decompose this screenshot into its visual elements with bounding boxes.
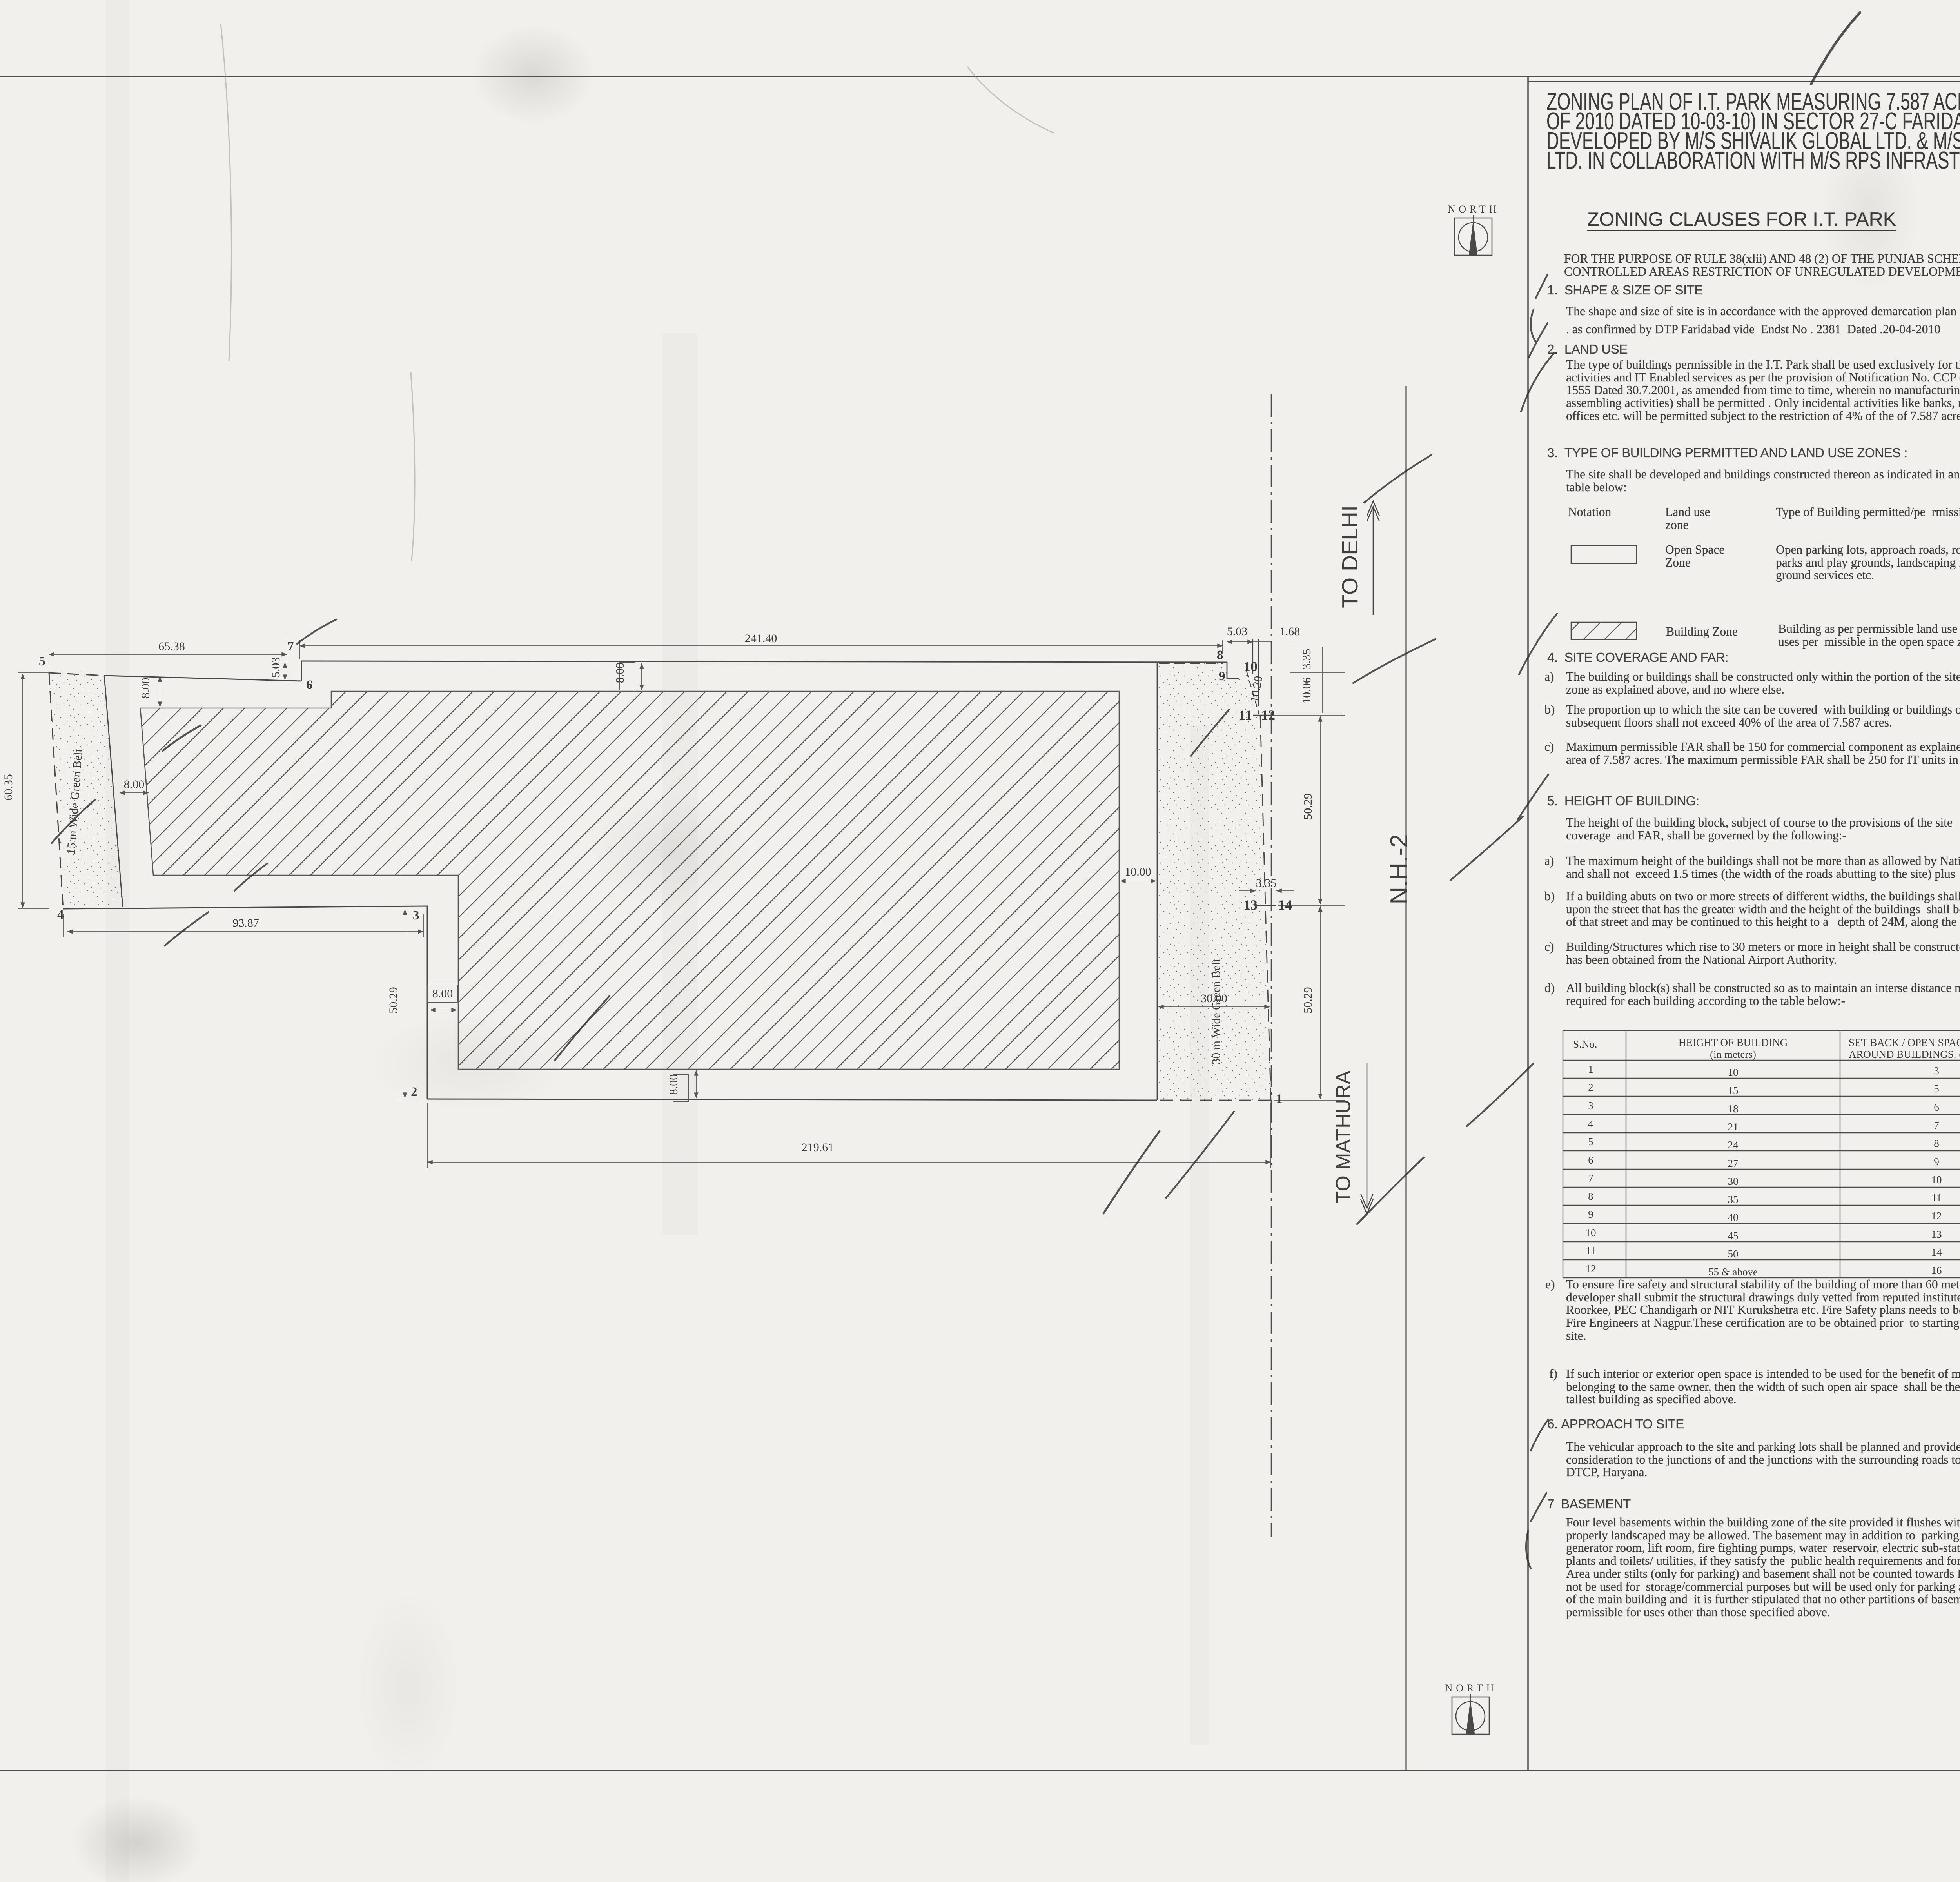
svg-text:AROUND BUILDINGS. (in meters): AROUND BUILDINGS. (in meters) bbox=[1849, 1048, 1960, 1060]
svg-text:7: 7 bbox=[287, 639, 294, 654]
svg-text:3: 3 bbox=[1588, 1100, 1593, 1112]
svg-text:TO DELHI: TO DELHI bbox=[1338, 505, 1363, 608]
svg-text:7: 7 bbox=[1588, 1172, 1593, 1184]
svg-text:5.03: 5.03 bbox=[269, 657, 282, 678]
svg-text:13: 13 bbox=[1243, 897, 1258, 913]
svg-text:27: 27 bbox=[1728, 1157, 1739, 1169]
svg-text:HEIGHT OF BUILDING: HEIGHT OF BUILDING bbox=[1679, 1037, 1788, 1048]
svg-text:8: 8 bbox=[1217, 648, 1223, 662]
svg-text:2: 2 bbox=[1588, 1081, 1593, 1093]
svg-text:12: 12 bbox=[1586, 1263, 1596, 1275]
svg-text:13: 13 bbox=[1931, 1228, 1942, 1240]
svg-text:6: 6 bbox=[1934, 1101, 1939, 1113]
svg-text:10: 10 bbox=[1243, 659, 1258, 674]
svg-text:1: 1 bbox=[1588, 1063, 1593, 1075]
svg-text:5: 5 bbox=[1588, 1136, 1593, 1148]
svg-text:24: 24 bbox=[1728, 1139, 1739, 1151]
svg-text:1: 1 bbox=[1276, 1092, 1283, 1106]
svg-text:5: 5 bbox=[39, 654, 45, 669]
svg-text:N.H.-2: N.H.-2 bbox=[1386, 834, 1413, 904]
svg-text:10.00: 10.00 bbox=[1125, 865, 1151, 878]
svg-text:50.29: 50.29 bbox=[1301, 987, 1314, 1014]
svg-text:8.00: 8.00 bbox=[139, 678, 152, 699]
svg-text:3.35: 3.35 bbox=[1300, 649, 1313, 670]
svg-text:6: 6 bbox=[306, 678, 313, 692]
svg-text:65.38: 65.38 bbox=[158, 640, 185, 653]
svg-text:10: 10 bbox=[1586, 1227, 1596, 1239]
svg-text:(in meters): (in meters) bbox=[1710, 1048, 1756, 1060]
svg-text:8.00: 8.00 bbox=[613, 663, 626, 683]
svg-text:14: 14 bbox=[1931, 1246, 1942, 1258]
svg-text:6: 6 bbox=[1588, 1154, 1593, 1166]
svg-text:15: 15 bbox=[1728, 1085, 1739, 1096]
svg-text:35: 35 bbox=[1728, 1194, 1739, 1205]
svg-text:8.00: 8.00 bbox=[667, 1074, 680, 1095]
svg-text:11: 11 bbox=[1931, 1192, 1942, 1204]
svg-text:60.35: 60.35 bbox=[2, 774, 15, 801]
svg-text:55 & above: 55 & above bbox=[1708, 1266, 1758, 1278]
svg-text:8: 8 bbox=[1588, 1190, 1593, 1202]
svg-text:2: 2 bbox=[411, 1085, 417, 1099]
svg-text:5: 5 bbox=[1934, 1083, 1939, 1095]
svg-text:9: 9 bbox=[1588, 1208, 1593, 1220]
svg-text:12: 12 bbox=[1261, 707, 1275, 723]
svg-text:30: 30 bbox=[1728, 1175, 1739, 1187]
svg-text:8: 8 bbox=[1934, 1137, 1939, 1149]
svg-text:12: 12 bbox=[1931, 1210, 1942, 1222]
svg-text:8.00: 8.00 bbox=[124, 778, 145, 791]
svg-text:10: 10 bbox=[1931, 1174, 1942, 1186]
svg-text:45: 45 bbox=[1728, 1230, 1739, 1242]
svg-text:18: 18 bbox=[1728, 1103, 1739, 1115]
svg-text:50.29: 50.29 bbox=[387, 987, 400, 1014]
svg-text:16: 16 bbox=[1931, 1264, 1942, 1276]
svg-text:8.00: 8.00 bbox=[432, 987, 453, 1000]
svg-text:3.35: 3.35 bbox=[1256, 877, 1277, 890]
svg-text:10.06: 10.06 bbox=[1300, 677, 1313, 704]
svg-text:7: 7 bbox=[1934, 1119, 1939, 1131]
svg-text:3: 3 bbox=[413, 908, 419, 923]
svg-text:1.68: 1.68 bbox=[1279, 625, 1300, 638]
svg-text:3: 3 bbox=[1934, 1065, 1939, 1077]
svg-text:11: 11 bbox=[1586, 1245, 1596, 1257]
svg-text:21: 21 bbox=[1728, 1121, 1739, 1133]
svg-text:NORTH: NORTH bbox=[1445, 1682, 1497, 1694]
svg-text:NORTH: NORTH bbox=[1448, 203, 1500, 215]
svg-text:11: 11 bbox=[1239, 707, 1252, 723]
svg-text:4: 4 bbox=[1588, 1118, 1593, 1130]
svg-text:40: 40 bbox=[1728, 1212, 1739, 1223]
svg-text:219.61: 219.61 bbox=[802, 1141, 834, 1154]
svg-text:TO MATHURA: TO MATHURA bbox=[1332, 1070, 1355, 1203]
svg-text:14: 14 bbox=[1278, 897, 1292, 913]
svg-text:50: 50 bbox=[1728, 1248, 1739, 1260]
svg-text:30 m Wide Green Belt: 30 m Wide Green Belt bbox=[1210, 958, 1223, 1065]
svg-text:9: 9 bbox=[1219, 669, 1225, 683]
svg-text:S.No.: S.No. bbox=[1573, 1038, 1597, 1050]
svg-text:241.40: 241.40 bbox=[745, 632, 777, 645]
svg-text:93.87: 93.87 bbox=[232, 917, 259, 930]
svg-text:9: 9 bbox=[1934, 1156, 1939, 1168]
svg-text:10: 10 bbox=[1728, 1066, 1739, 1078]
svg-text:4: 4 bbox=[57, 908, 64, 922]
svg-text:SET BACK / OPEN SPACE TO BE LE: SET BACK / OPEN SPACE TO BE LEFT bbox=[1849, 1037, 1960, 1048]
svg-text:5.03: 5.03 bbox=[1227, 625, 1248, 638]
svg-text:50.29: 50.29 bbox=[1301, 793, 1314, 820]
